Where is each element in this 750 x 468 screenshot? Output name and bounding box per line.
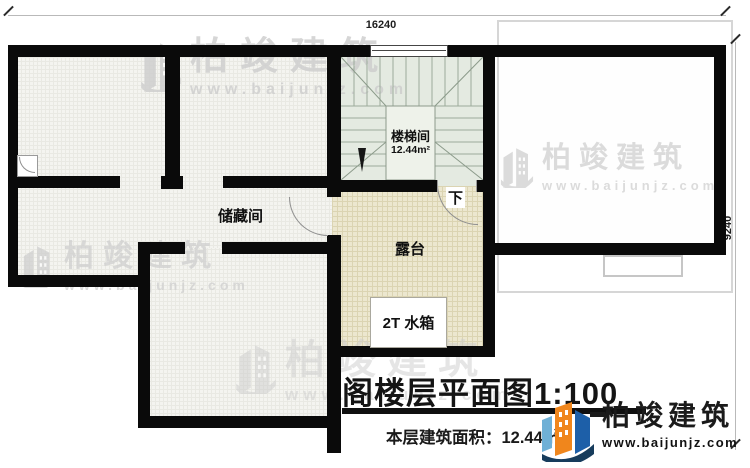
stairwell-label-box: 楼梯间 12.44m² (386, 106, 435, 180)
wall-stair-right (483, 45, 495, 357)
logo-building-icon (540, 398, 598, 462)
water-tank-label: 2T 水箱 (383, 312, 435, 333)
wall-interior-h1 (18, 176, 120, 188)
wall-interior-v (165, 57, 180, 178)
wall-storage-south (8, 275, 142, 287)
wall-top-left (8, 45, 370, 57)
top-dimension-value: 16240 (341, 19, 421, 31)
watermark-building-icon (235, 340, 277, 394)
wall-right-room-east (714, 45, 726, 255)
wall-lower-room-west (138, 245, 150, 428)
wall-lower-room-north-2 (222, 242, 332, 254)
door-jamb (476, 180, 477, 192)
stairwell-label: 楼梯间 (391, 130, 430, 145)
watermark: 柏竣建筑 www.baijunjz.com (500, 144, 718, 192)
stair-direction-label: 下 (446, 187, 465, 208)
wall-center-upper (327, 45, 341, 197)
wall-stair-terrace-1 (341, 180, 437, 192)
wall-lower-room-south (138, 416, 332, 428)
logo-brand-text: 柏竣建筑 (602, 394, 734, 434)
storage-room-label: 储藏间 (198, 205, 283, 226)
watermark-url: www.baijunjz.com (542, 179, 718, 192)
wall-lower-room-north-1 (138, 242, 185, 254)
window-mullion (372, 50, 446, 51)
company-logo: 柏竣建筑 www.baijunjz.com (540, 394, 750, 468)
watermark-building-icon (500, 144, 534, 188)
watermark-brand: 柏竣建筑 (542, 144, 718, 173)
wall-right-room-south (490, 243, 726, 255)
roof-ledge-outline (603, 255, 683, 277)
water-tank: 2T 水箱 (370, 297, 447, 348)
stairwell-area: 12.44m² (391, 144, 430, 156)
floor-area-text: 本层建筑面积：12.44㎡ (386, 424, 559, 448)
stairwell-window (370, 45, 448, 57)
floor-plan-page: 16240 9240 (0, 0, 750, 468)
top-dimension-line (8, 15, 726, 16)
door-jamb (437, 180, 438, 192)
wall-interior-h2 (223, 176, 327, 188)
terrace-label: 露台 (370, 238, 450, 259)
logo-url-text: www.baijunjz.com (602, 435, 738, 450)
